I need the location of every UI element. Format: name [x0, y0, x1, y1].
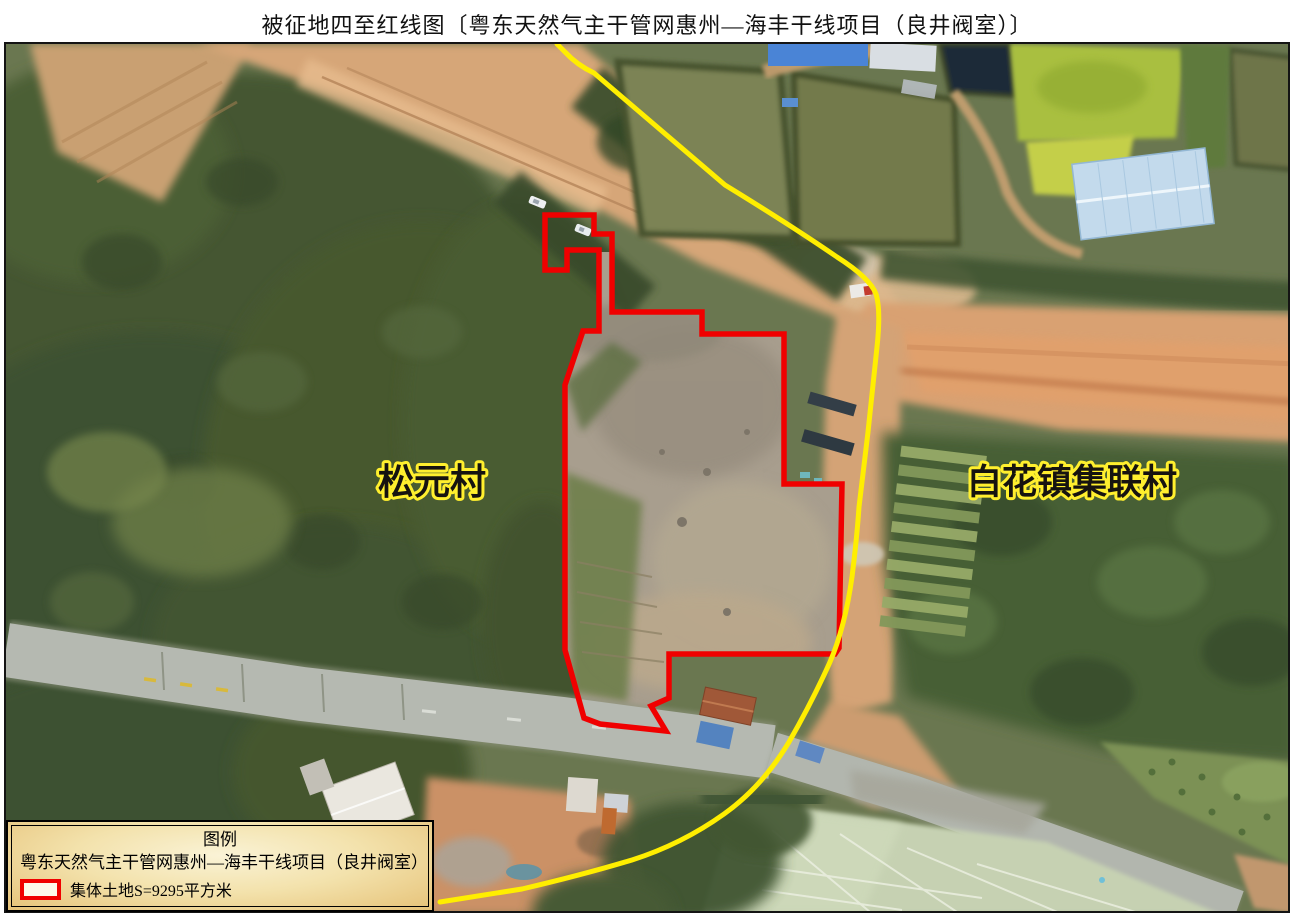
blue-roof-building — [768, 44, 868, 66]
legend-item-collective-land: 集体土地S=9295平方米 — [20, 877, 420, 901]
aerial-map: 松元村 白花镇集联村 — [4, 42, 1290, 913]
legend-area-label: 集体土地S=9295平方米 — [70, 877, 232, 901]
redline-swatch — [20, 879, 61, 900]
legend-frame: 图例 粤东天然气主干管网惠州—海丰干线项目（良井阀室） 集体土地S=9295平方… — [11, 825, 429, 907]
warehouse-building — [1072, 148, 1214, 240]
page-title: 被征地四至红线图〔粤东天然气主干管网惠州—海丰干线项目（良井阀室）〕 — [0, 8, 1294, 40]
village-label-left: 松元村 — [378, 462, 486, 502]
screenshot-root: 被征地四至红线图〔粤东天然气主干管网惠州—海丰干线项目（良井阀室）〕 — [0, 0, 1294, 915]
rubble-pile — [840, 542, 884, 566]
orange-container — [601, 808, 617, 835]
legend-title: 图例 — [20, 829, 420, 850]
white-building — [869, 44, 936, 72]
legend-project-name: 粤东天然气主干管网惠州—海丰干线项目（良井阀室） — [20, 850, 420, 876]
aerial-photo: 松元村 白花镇集联村 — [6, 44, 1290, 913]
village-label-right: 白花镇集联村 — [967, 463, 1177, 502]
legend: 图例 粤东天然气主干管网惠州—海丰干线项目（良井阀室） 集体土地S=9295平方… — [6, 820, 434, 912]
